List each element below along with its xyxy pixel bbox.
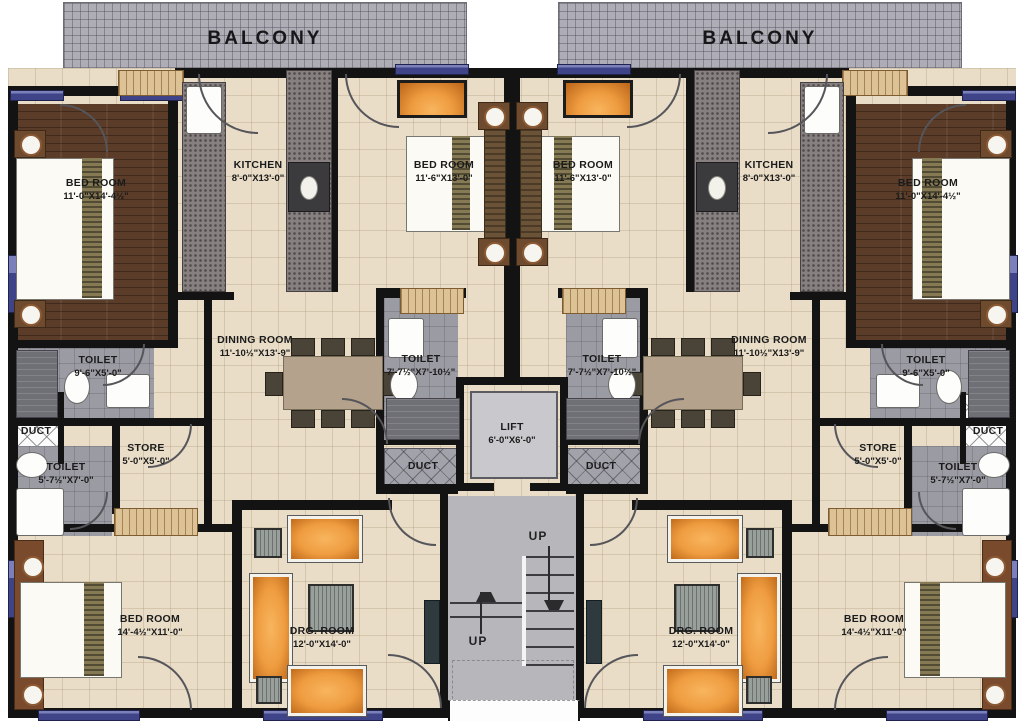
room-dims: 5'-0"X5'-0" [854, 456, 901, 468]
shower [968, 350, 1010, 418]
room-dims: 9'-6"X5'-0" [74, 368, 121, 380]
room-dims: 9'-6"X5'-0" [902, 368, 949, 380]
chair [265, 372, 283, 396]
room-name: DRG. ROOM [669, 625, 734, 639]
chair [291, 410, 315, 428]
room-dims: 11'-6"X13'-0" [414, 173, 474, 185]
wall [440, 492, 448, 716]
stove-burner [708, 176, 726, 200]
headboard [484, 120, 506, 252]
wall [168, 292, 234, 300]
dining-table [643, 356, 743, 410]
bed-runner [920, 582, 940, 676]
wall [232, 500, 392, 510]
balcony-left-label: BALCONY [208, 28, 323, 50]
wall [8, 340, 170, 348]
room-name: TOILET [568, 353, 636, 367]
chair [291, 338, 315, 356]
window [395, 64, 469, 75]
room-label-drawing-room-left: DRG. ROOM12'-0"X14'-0" [290, 625, 355, 651]
room-dims: 11'-10½"X13'-9" [731, 348, 807, 360]
room-dims: 5'-7½"X7'-0" [930, 475, 985, 487]
room-name: DINING ROOM [217, 334, 293, 348]
bed [20, 582, 122, 678]
side-table [256, 676, 282, 704]
wardrobe [114, 508, 198, 536]
stairs-up-label-bottom: UP [469, 634, 488, 648]
wall [904, 420, 912, 514]
room-name: KITCHEN [232, 159, 285, 173]
stair-landing-line [450, 616, 522, 618]
lamp [984, 556, 1006, 578]
lamp [986, 304, 1008, 326]
room-label-bedroom-top-left: BED ROOM11'-0"X14'-4½" [63, 177, 128, 203]
chair [743, 372, 761, 396]
stair-tread [526, 592, 574, 594]
chair [681, 410, 705, 428]
room-label-duct-center-left: DUCT [408, 460, 438, 474]
room-label-toilet-left-lower: TOILET5'-7½"X7'-0" [38, 461, 93, 487]
room-label-toilet-left-upper: TOILET9'-6"X5'-0" [74, 354, 121, 380]
lamp [22, 684, 44, 706]
room-dims: 5'-7½"X7'-0" [38, 475, 93, 487]
room-label-duct-right: DUCT [973, 425, 1003, 439]
room-dims: 11'-10½"X13'-9" [217, 348, 293, 360]
wall [566, 440, 640, 445]
room-name: TOILET [930, 461, 985, 475]
wardrobe [118, 70, 184, 96]
stair-tread [526, 556, 574, 558]
room-dims: 6'-0"X6'-0" [488, 435, 535, 447]
stair-tread [526, 574, 574, 576]
room-name: TOILET [38, 461, 93, 475]
room-label-kitchen-left: KITCHEN8'-0"X13'-0" [232, 159, 285, 185]
room-label-lift: LIFT6'-0"X6'-0" [488, 421, 535, 447]
window-seat [563, 80, 633, 118]
wall [168, 94, 178, 348]
room-label-bedroom-bottom-right: BED ROOM14'-4½"X11'-0" [841, 613, 906, 639]
wardrobe [562, 288, 626, 314]
stair-arrow-down-head [544, 600, 564, 620]
wall [846, 94, 856, 348]
room-dims: 8'-0"X13'-0" [743, 173, 796, 185]
floor-plan: BALCONY BALCONY BED ROOM11'-0"X14'-4½"KI… [0, 0, 1024, 727]
room-dims: 5'-0"X5'-0" [122, 456, 169, 468]
room-label-kitchen-right: KITCHEN8'-0"X13'-0" [743, 159, 796, 185]
room-dims: 12'-0"X14'-0" [290, 639, 355, 651]
wall [782, 510, 792, 716]
stair-bottom-opening [448, 700, 580, 721]
window [886, 710, 988, 721]
room-label-toilet-center-right: TOILET7'-7½"X7'-10½" [568, 353, 636, 379]
stair-arrow-down-line [548, 546, 550, 600]
window [962, 90, 1016, 101]
room-label-duct-center-right: DUCT [586, 460, 616, 474]
stair-tread [526, 646, 574, 648]
lamp [484, 106, 506, 128]
room-label-bedroom-top-right: BED ROOM11'-0"X14'-4½" [895, 177, 960, 203]
window [10, 90, 64, 101]
room-name: BED ROOM [63, 177, 128, 191]
room-label-dining-left: DINING ROOM11'-10½"X13'-9" [217, 334, 293, 360]
wardrobe [842, 70, 908, 96]
room-name: DUCT [21, 425, 51, 439]
side-table [746, 676, 772, 704]
room-dims: 14'-4½"X11'-0" [117, 627, 182, 639]
room-label-drawing-room-right: DRG. ROOM12'-0"X14'-0" [669, 625, 734, 651]
stair-arrow-up-head [476, 582, 496, 602]
wall [784, 524, 828, 532]
window-seat [397, 80, 467, 118]
balcony-right-label: BALCONY [703, 28, 818, 50]
room-name: BED ROOM [117, 613, 182, 627]
wall [960, 392, 966, 464]
wall [58, 392, 64, 464]
chair [321, 338, 345, 356]
loveseat [668, 516, 742, 562]
wall [204, 294, 212, 526]
bath [566, 398, 640, 440]
room-name: TOILET [74, 354, 121, 368]
room-name: DRG. ROOM [290, 625, 355, 639]
wall [384, 440, 458, 445]
wall [576, 492, 584, 716]
headboard [520, 120, 542, 252]
room-name: LIFT [488, 421, 535, 435]
room-dims: 12'-0"X14'-0" [669, 639, 734, 651]
room-label-bedroom-top-center-right: BED ROOM11'-6"X13'-0" [553, 159, 613, 185]
room-dims: 11'-0"X14'-4½" [895, 191, 960, 203]
stairs-up-label-top: UP [529, 529, 548, 543]
room-label-store-right: STORE5'-0"X5'-0" [854, 442, 901, 468]
wall [812, 294, 820, 526]
wall [456, 483, 494, 491]
basin [962, 488, 1010, 536]
room-dims: 11'-6"X13'-0" [553, 173, 613, 185]
wardrobe [400, 288, 464, 314]
sofa [250, 574, 292, 682]
room-name: DUCT [586, 460, 616, 474]
room-label-bedroom-bottom-left: BED ROOM14'-4½"X11'-0" [117, 613, 182, 639]
room-name: KITCHEN [743, 159, 796, 173]
lamp [20, 134, 42, 156]
room-name: BED ROOM [895, 177, 960, 191]
room-name: TOILET [902, 354, 949, 368]
window [557, 64, 631, 75]
room-label-bedroom-top-center-left: BED ROOM11'-6"X13'-0" [414, 159, 474, 185]
lamp [522, 242, 544, 264]
room-label-store-left: STORE5'-0"X5'-0" [122, 442, 169, 468]
room-name: BED ROOM [553, 159, 613, 173]
room-name: STORE [122, 442, 169, 456]
loveseat [288, 666, 366, 716]
lamp [22, 556, 44, 578]
wardrobe [828, 508, 912, 536]
loveseat [664, 666, 742, 716]
dining-table [283, 356, 383, 410]
wall [854, 340, 1016, 348]
lamp [522, 106, 544, 128]
sofa [738, 574, 780, 682]
shower [16, 350, 58, 418]
chair [651, 338, 675, 356]
room-label-toilet-center-left: TOILET7'-7½"X7'-10½" [387, 353, 455, 379]
room-name: STORE [854, 442, 901, 456]
lamp [986, 134, 1008, 156]
room-name: DUCT [408, 460, 438, 474]
chair [711, 410, 735, 428]
lamp [20, 304, 42, 326]
wall [790, 292, 856, 300]
room-label-duct-left: DUCT [21, 425, 51, 439]
wall [632, 500, 792, 510]
tv-unit [424, 600, 440, 664]
room-dims: 8'-0"X13'-0" [232, 173, 285, 185]
room-dims: 7'-7½"X7'-10½" [568, 367, 636, 379]
tv-unit [586, 600, 602, 664]
basin [388, 318, 424, 358]
side-table [254, 528, 282, 558]
bed-runner [84, 582, 104, 676]
stair-dashed-landing [452, 660, 574, 704]
side-table [746, 528, 774, 558]
lamp [984, 684, 1006, 706]
lamp [484, 242, 506, 264]
room-name: DINING ROOM [731, 334, 807, 348]
room-label-dining-right: DINING ROOM11'-10½"X13'-9" [731, 334, 807, 360]
room-dims: 11'-0"X14'-4½" [63, 191, 128, 203]
room-label-toilet-right-upper: TOILET9'-6"X5'-0" [902, 354, 949, 380]
room-name: BED ROOM [414, 159, 474, 173]
wall [112, 420, 120, 514]
loveseat [288, 516, 362, 562]
room-name: TOILET [387, 353, 455, 367]
room-name: BED ROOM [841, 613, 906, 627]
basin [602, 318, 638, 358]
stair-tread [526, 628, 574, 630]
stair-landing-line [450, 602, 522, 604]
stove-burner [300, 176, 318, 200]
bath [386, 398, 460, 440]
chair [681, 338, 705, 356]
wall [196, 524, 240, 532]
room-dims: 7'-7½"X7'-10½" [387, 367, 455, 379]
window [38, 710, 140, 721]
wall [504, 288, 520, 383]
room-name: DUCT [973, 425, 1003, 439]
wall [530, 483, 568, 491]
wall [232, 510, 242, 716]
chair [351, 338, 375, 356]
basin [16, 488, 64, 536]
room-label-toilet-right-lower: TOILET5'-7½"X7'-0" [930, 461, 985, 487]
room-dims: 14'-4½"X11'-0" [841, 627, 906, 639]
wall [456, 377, 568, 385]
